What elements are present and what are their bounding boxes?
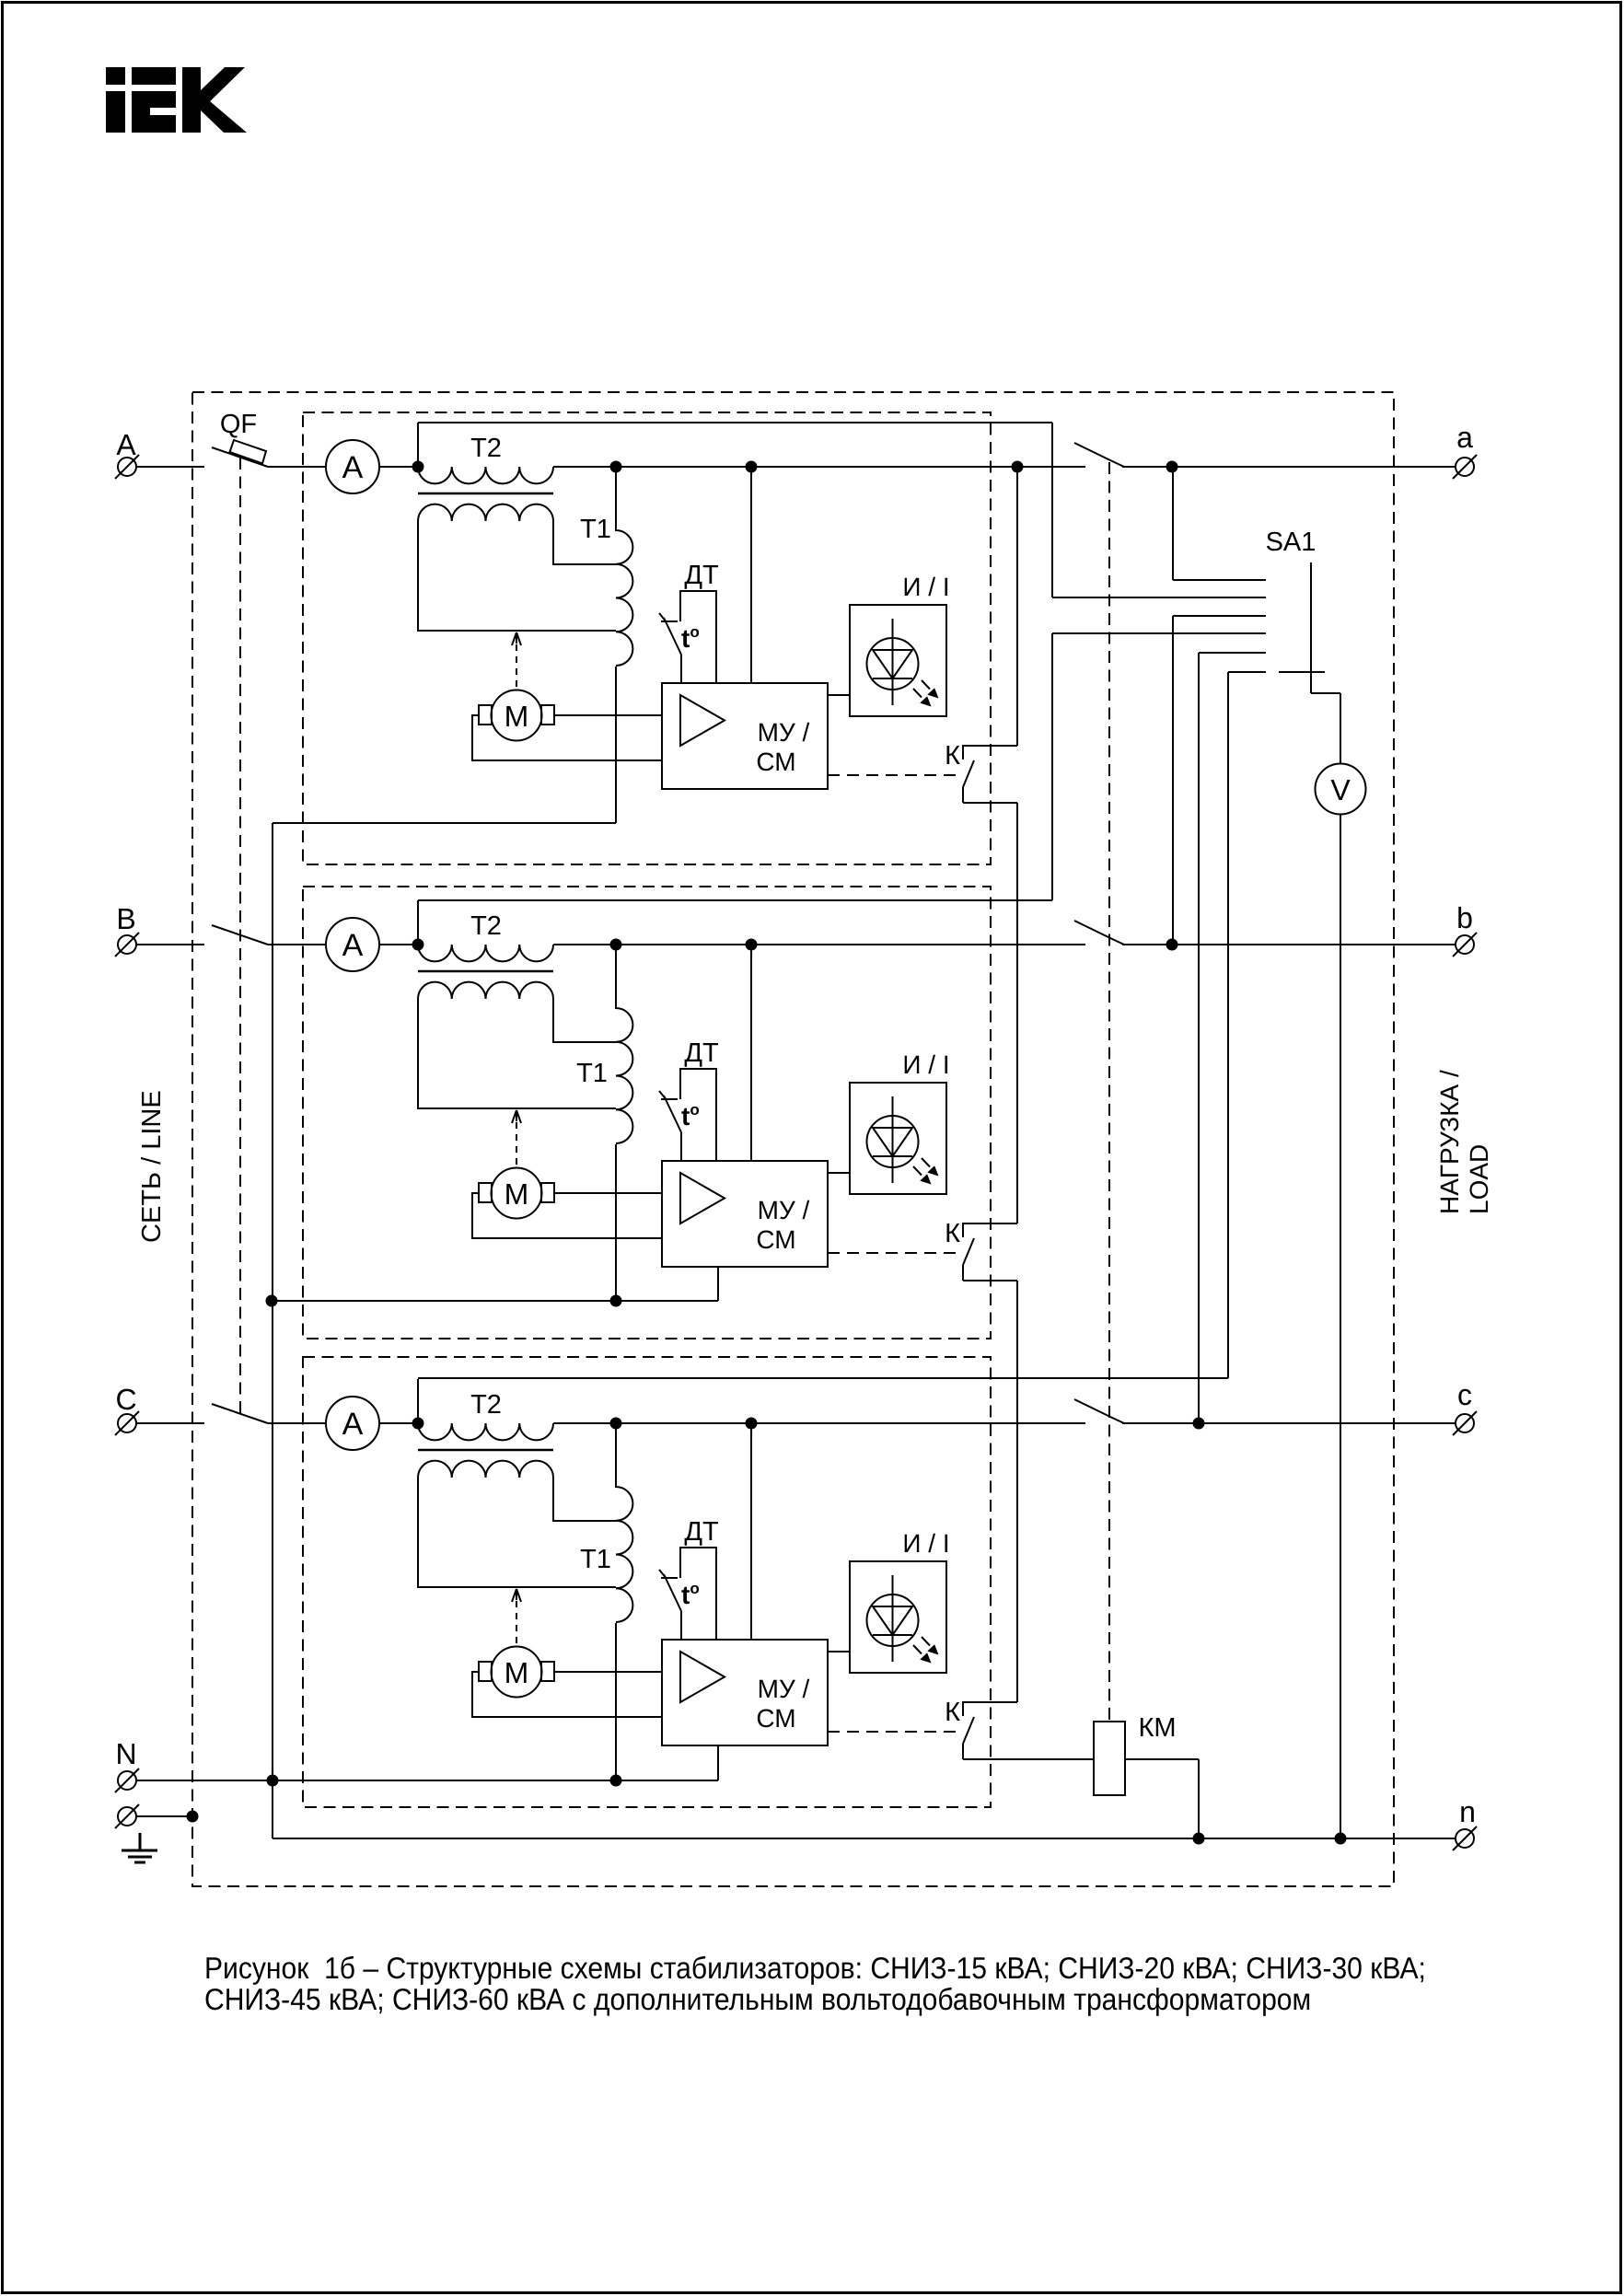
svg-text:Т1: Т1 — [580, 1545, 611, 1574]
svg-text:A: A — [116, 428, 136, 461]
svg-text:B: B — [116, 902, 135, 935]
svg-text:c: c — [1457, 1378, 1472, 1411]
svg-text:LOAD: LOAD — [1465, 1144, 1493, 1214]
svg-text:C: C — [115, 1383, 136, 1416]
svg-text:QF: QF — [220, 410, 257, 439]
svg-text:Т1: Т1 — [580, 515, 611, 544]
svg-text:N: N — [115, 1737, 136, 1770]
svg-text:Т1: Т1 — [576, 1059, 608, 1088]
svg-text:b: b — [1456, 901, 1473, 934]
svg-text:СНИЗ-45 кВА; СНИЗ-60 кВА с доп: СНИЗ-45 кВА; СНИЗ-60 кВА с дополнительны… — [204, 1982, 1311, 2016]
svg-text:V: V — [1330, 773, 1351, 806]
svg-text:КМ: КМ — [1138, 1713, 1176, 1743]
svg-text:СЕТЬ / LINE: СЕТЬ / LINE — [137, 1090, 167, 1243]
svg-text:Рисунок 1б – Структурные схем: Рисунок 1б – Структурные схемы стабилиза… — [204, 1951, 1426, 1985]
svg-text:a: a — [1456, 421, 1473, 454]
svg-text:SA1: SA1 — [1266, 528, 1317, 557]
svg-text:n: n — [1459, 1795, 1476, 1828]
svg-text:НАГРУЗКА /: НАГРУЗКА / — [1435, 1070, 1464, 1214]
